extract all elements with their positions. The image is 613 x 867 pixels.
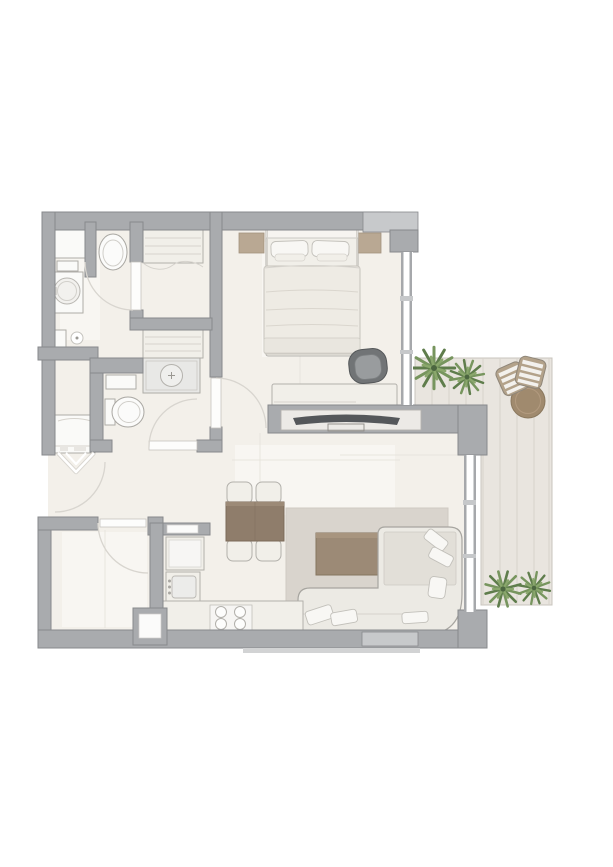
burner [235,607,246,618]
wall-segment [38,630,487,648]
sink-basin [172,576,196,598]
wall-segment [90,440,112,452]
shelf [57,261,78,271]
wall-segment [458,405,487,455]
media-wall [281,410,421,431]
wall-segment [90,373,103,440]
burner [216,619,227,630]
window-sill-mark [463,554,476,558]
dining-chair [227,539,252,561]
wall-segment [130,222,143,262]
sofa-pillow [402,611,429,624]
wall-segment [38,347,98,360]
wall-segment [85,222,96,277]
bedroom-door-leaf [211,378,221,428]
sofa-cushion [428,576,448,599]
wall-window-panel [362,632,418,646]
wall-segment [130,318,212,330]
desk [272,384,397,407]
wc-door-leaf [149,441,197,450]
wall-segment-light [363,212,418,232]
desk-chair [347,347,388,385]
bathroom-door-leaf [131,262,141,310]
burner [216,607,227,618]
threshold-step [243,648,420,653]
wall-segment [38,517,98,530]
wall-segment [197,440,222,452]
window-sill-mark [463,500,476,505]
shaft-inner [139,614,161,638]
floor-plan-canvas [0,0,613,867]
utility-niche [54,415,95,453]
wall-segment [458,610,487,648]
duvet-fold [264,338,360,353]
burner [235,619,246,630]
storage-door-leaf [100,519,146,527]
wall-segment [42,212,55,455]
wall-segment [38,517,51,647]
dining-chair [256,482,281,504]
wall-segment [210,212,222,377]
dining-chair [227,482,252,504]
pass-through-niche [167,525,198,533]
coffee-table-edge [316,533,384,538]
window-sill-mark [400,350,413,354]
dining-chair [256,539,281,561]
bedside-rug-right [355,233,381,253]
bedside-rug-left [239,233,264,253]
window-sill-mark [400,296,413,301]
washbasin [106,375,136,389]
wall-pillar [390,230,418,252]
wall-segment [90,358,143,373]
coffee-table [316,533,384,575]
